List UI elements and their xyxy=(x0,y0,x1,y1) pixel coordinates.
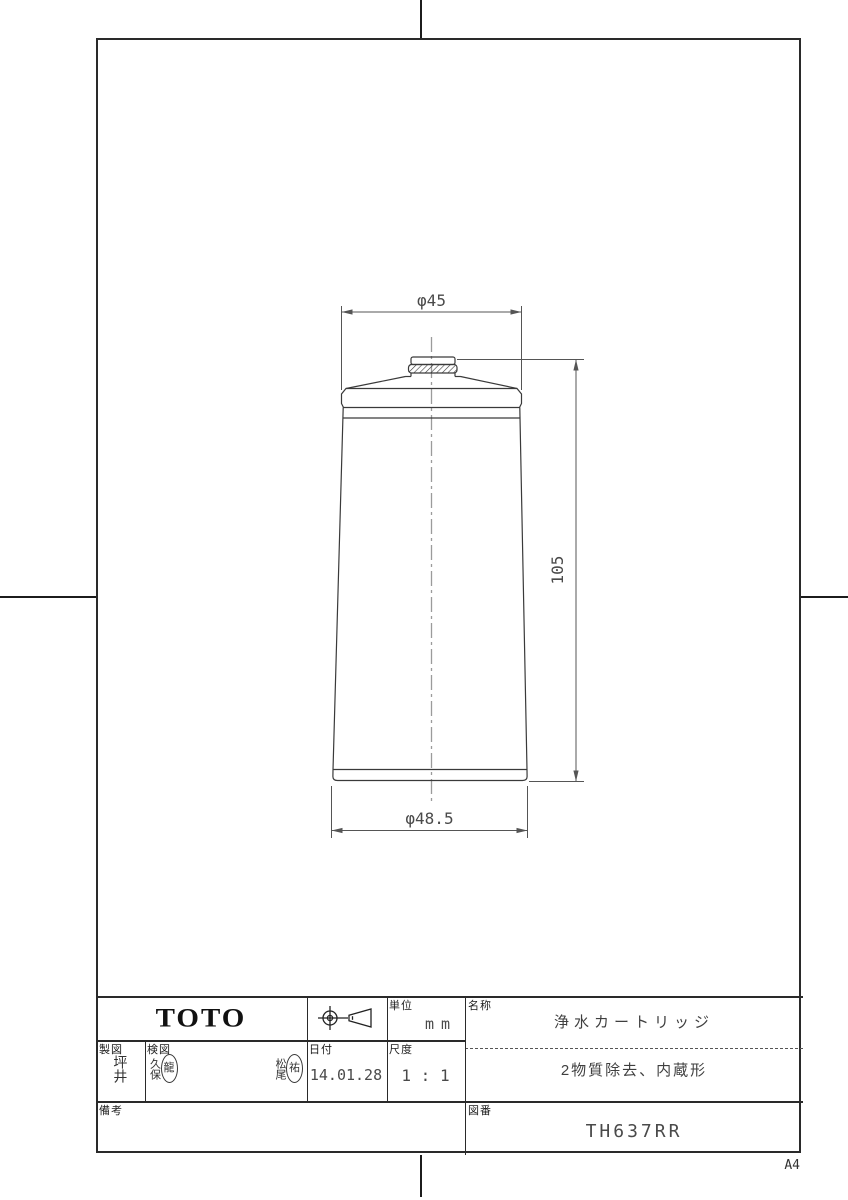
body xyxy=(333,408,527,781)
date-value: 14.01.28 xyxy=(306,1066,386,1084)
unit-cell: 単位 mm xyxy=(386,996,465,1040)
remarks-cell: 備考 xyxy=(96,1101,465,1155)
dim-bottom-diameter-label: φ48.5 xyxy=(405,809,453,828)
paper-size-label: A4 xyxy=(760,1158,800,1173)
top-cap xyxy=(411,357,455,365)
projection-symbol-icon xyxy=(315,1004,377,1032)
knurled-ring xyxy=(409,365,458,374)
drawing-number-cell: 図番 TH637RR xyxy=(465,1101,803,1155)
name-cell: 名称 浄水カートリッジ 2物質除去、内蔵形 xyxy=(465,996,803,1101)
checker-seal-stamp: 祐 xyxy=(286,1054,303,1083)
checked-cell: 検図 久保 龍 松尾 祐 xyxy=(144,1040,306,1101)
projection-symbol-cell xyxy=(306,996,386,1040)
checker-signature: 松尾 祐 xyxy=(273,1054,303,1083)
remarks-label: 備考 xyxy=(99,1102,123,1118)
drawing-sheet: φ45 105 φ48.5 TOTO xyxy=(0,0,848,1200)
drawing-number-value: TH637RR xyxy=(465,1121,803,1142)
part-spec: 2物質除去、内蔵形 xyxy=(465,1059,803,1080)
checker-name: 久保 xyxy=(148,1058,160,1080)
shoulder-left xyxy=(346,377,406,389)
part-name: 浄水カートリッジ xyxy=(465,1011,803,1032)
scale-cell: 尺度 1 : 1 xyxy=(386,1040,465,1101)
unit-label: 単位 xyxy=(389,997,413,1013)
dim-height-label: 105 xyxy=(548,556,567,585)
checker-seal-stamp: 龍 xyxy=(161,1054,178,1083)
drawing-number-label: 図番 xyxy=(468,1102,492,1118)
title-block: TOTO 単位 mm 名称 浄水カートリッジ 2物質除去、内蔵形 xyxy=(96,996,803,1155)
checker-name: 松尾 xyxy=(273,1058,285,1080)
toto-logo: TOTO xyxy=(156,1003,247,1033)
dim-top-diameter-label: φ45 xyxy=(417,291,446,310)
drafter-name: 坪井 xyxy=(113,1055,128,1083)
unit-value: mm xyxy=(386,1015,457,1033)
cartridge-outline xyxy=(333,357,527,781)
drafted-cell: 製図 坪井 xyxy=(96,1040,144,1101)
shoulder-right xyxy=(461,377,518,389)
scale-label: 尺度 xyxy=(389,1041,413,1057)
date-label: 日付 xyxy=(309,1041,333,1057)
scale-value: 1 : 1 xyxy=(386,1066,465,1085)
logo-cell: TOTO xyxy=(96,996,306,1040)
checker-signature: 久保 龍 xyxy=(148,1054,178,1083)
date-cell: 日付 14.01.28 xyxy=(306,1040,386,1101)
